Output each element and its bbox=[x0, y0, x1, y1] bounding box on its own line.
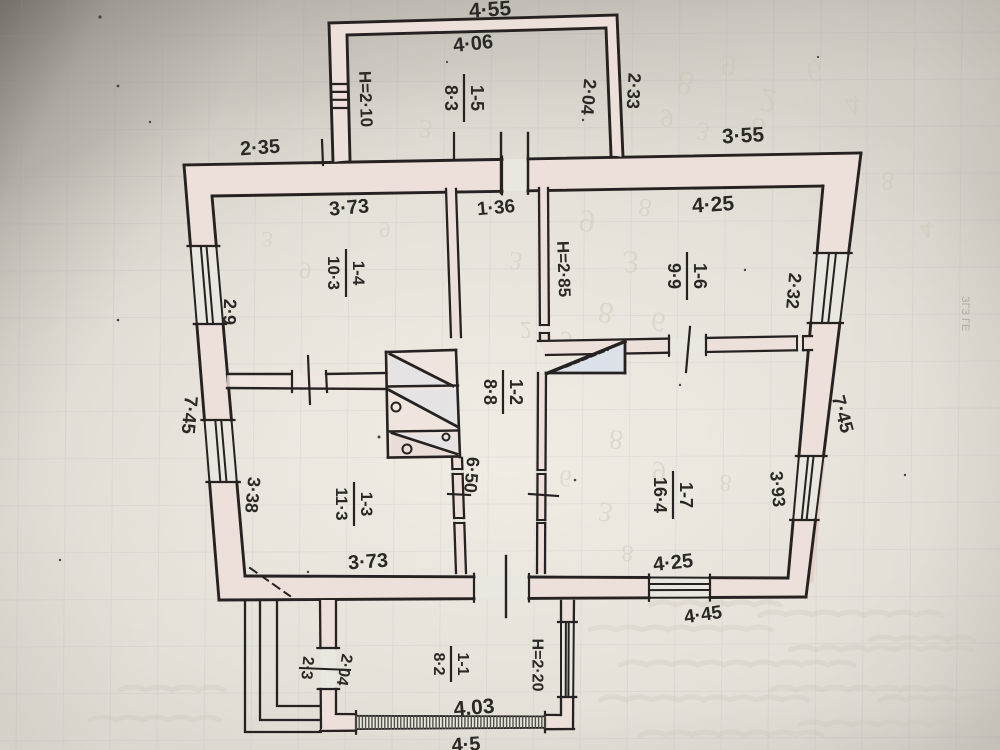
svg-text:8·2: 8·2 bbox=[430, 652, 447, 675]
svg-text:1-7: 1-7 bbox=[676, 482, 696, 508]
svg-text:1-5: 1-5 bbox=[467, 85, 487, 111]
svg-text:1·36: 1·36 bbox=[476, 196, 516, 220]
svg-text:9: 9 bbox=[660, 104, 674, 133]
svg-text:9: 9 bbox=[298, 256, 312, 283]
svg-text:8: 8 bbox=[719, 469, 732, 496]
svg-text:H=2·10: H=2·10 bbox=[355, 71, 376, 128]
svg-text:H=2·85: H=2·85 bbox=[553, 241, 574, 298]
svg-text:4·55: 4·55 bbox=[468, 0, 512, 23]
svg-text:3·55: 3·55 bbox=[721, 123, 764, 148]
svg-text:2·33: 2·33 bbox=[623, 72, 645, 109]
svg-text:2·32: 2·32 bbox=[782, 272, 805, 310]
svg-text:3: 3 bbox=[508, 246, 523, 276]
svg-text:2·04: 2·04 bbox=[333, 653, 355, 688]
svg-text:4: 4 bbox=[920, 216, 932, 242]
svg-text:7·45: 7·45 bbox=[177, 395, 201, 435]
svg-text:2·04: 2·04 bbox=[577, 78, 600, 116]
svg-text:6: 6 bbox=[805, 54, 823, 88]
svg-text:1-1: 1-1 bbox=[454, 652, 471, 675]
svg-text:ЗГЗ ГЕ: ЗГЗ ГЕ bbox=[959, 296, 971, 331]
svg-text:1-3: 1-3 bbox=[357, 492, 376, 517]
svg-text:10·3: 10·3 bbox=[324, 256, 343, 290]
svg-text:9: 9 bbox=[720, 48, 738, 82]
svg-text:H=2·20: H=2·20 bbox=[528, 639, 545, 692]
svg-text:11·3: 11·3 bbox=[332, 487, 351, 520]
svg-text:8: 8 bbox=[672, 62, 698, 102]
svg-text:4.03: 4.03 bbox=[453, 695, 496, 721]
svg-text:3: 3 bbox=[596, 495, 615, 528]
svg-text:4·06: 4·06 bbox=[452, 31, 494, 57]
svg-text:4·5: 4·5 bbox=[451, 733, 481, 750]
svg-text:8·3: 8·3 bbox=[441, 85, 461, 111]
svg-text:3·73: 3·73 bbox=[328, 195, 370, 220]
svg-text:9: 9 bbox=[577, 203, 596, 240]
svg-text:6: 6 bbox=[558, 464, 572, 491]
svg-text:9: 9 bbox=[378, 217, 391, 243]
svg-text:7·45: 7·45 bbox=[827, 393, 857, 436]
svg-text:2·3: 2·3 bbox=[297, 656, 316, 681]
svg-text:8: 8 bbox=[595, 295, 616, 330]
svg-text:4·25: 4·25 bbox=[691, 192, 735, 218]
svg-text:1-4: 1-4 bbox=[349, 261, 368, 286]
svg-text:6: 6 bbox=[650, 305, 667, 337]
svg-text:8·8: 8·8 bbox=[480, 379, 500, 405]
svg-text:4: 4 bbox=[844, 88, 860, 122]
svg-text:2: 2 bbox=[520, 316, 532, 342]
svg-text:3: 3 bbox=[418, 114, 433, 144]
svg-text:16·4: 16·4 bbox=[650, 477, 670, 513]
svg-text:3·93: 3·93 bbox=[766, 470, 789, 508]
svg-text:3·73: 3·73 bbox=[347, 550, 388, 575]
svg-text:3·38: 3·38 bbox=[241, 476, 264, 514]
svg-text:4·45: 4·45 bbox=[683, 602, 724, 628]
svg-text:6·50: 6·50 bbox=[460, 456, 483, 494]
svg-text:1-6: 1-6 bbox=[690, 263, 710, 289]
svg-text:3: 3 bbox=[621, 244, 640, 281]
svg-text:9·9: 9·9 bbox=[664, 263, 684, 289]
svg-text:8: 8 bbox=[608, 423, 625, 455]
svg-text:3: 3 bbox=[694, 116, 712, 147]
svg-text:8: 8 bbox=[880, 166, 895, 196]
svg-text:2·35: 2·35 bbox=[239, 136, 280, 161]
svg-text:8: 8 bbox=[636, 192, 654, 223]
svg-text:8: 8 bbox=[620, 539, 634, 566]
svg-text:2·9: 2·9 bbox=[219, 299, 240, 326]
svg-text:3: 3 bbox=[262, 227, 273, 252]
svg-text:1-2: 1-2 bbox=[506, 379, 526, 405]
svg-text:4·25: 4·25 bbox=[652, 550, 694, 576]
